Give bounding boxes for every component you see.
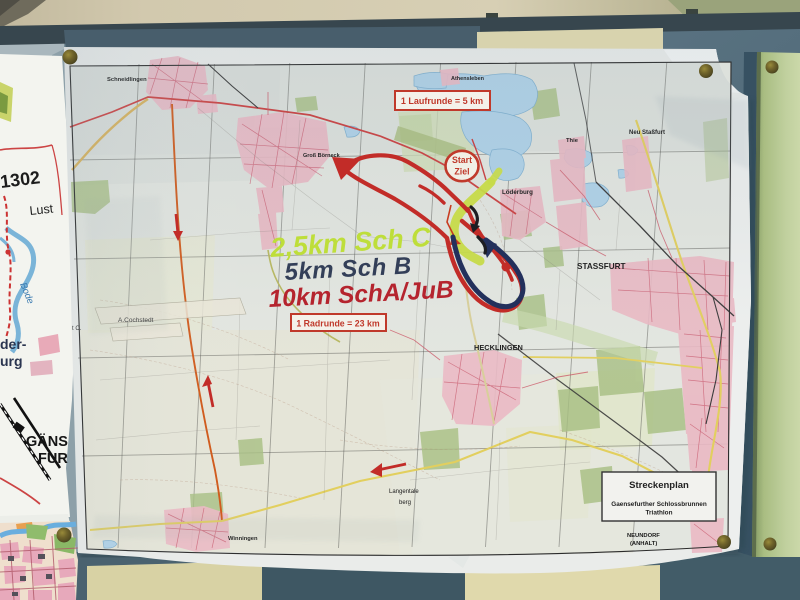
svg-text:Start: Start (452, 155, 472, 165)
svg-text:urg: urg (0, 353, 23, 369)
svg-text:Gaensefurther Schlossbrunnen: Gaensefurther Schlossbrunnen (611, 501, 707, 508)
svg-text:Lust: Lust (29, 202, 54, 218)
svg-text:Streckenplan: Streckenplan (629, 480, 689, 491)
svg-text:FUR: FUR (38, 451, 68, 467)
svg-text:1 Radrunde = 23 km: 1 Radrunde = 23 km (296, 319, 380, 329)
svg-text:Ziel: Ziel (454, 167, 469, 177)
svg-text:der-: der- (0, 336, 27, 352)
svg-text:GÄNS: GÄNS (26, 433, 68, 450)
svg-text:Triathlon: Triathlon (646, 510, 673, 517)
svg-text:1 Laufrunde = 5 km: 1 Laufrunde = 5 km (401, 96, 483, 106)
